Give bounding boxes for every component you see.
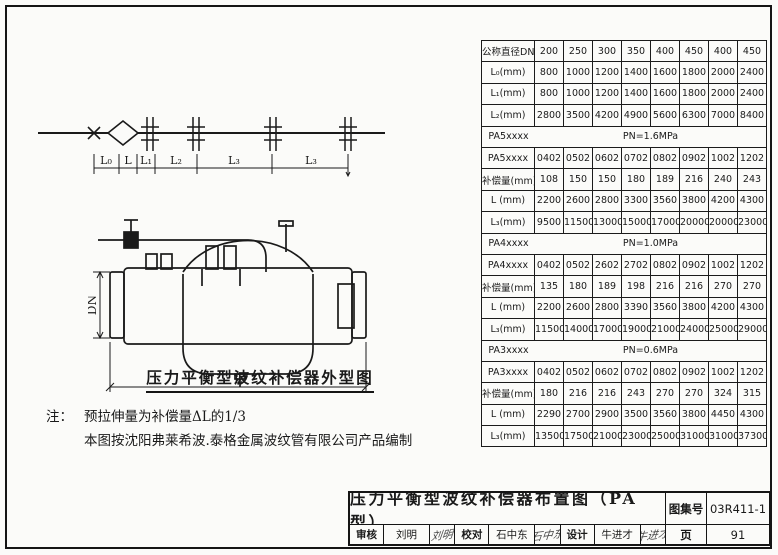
value-cell: 4900 xyxy=(622,105,651,126)
note-prefix: 注： xyxy=(46,406,84,430)
row-label-cell: PA4xxxx xyxy=(482,254,535,275)
role-name-audit: 刘明 xyxy=(384,525,430,544)
table-row: L₃(mm)1350017500210002300025000310003100… xyxy=(482,426,767,447)
pn-row-label: PA4xxxx xyxy=(482,234,535,254)
dim-label-l0: L₀ xyxy=(100,154,112,167)
value-cell: 450 xyxy=(738,41,767,62)
role-label-design: 设计 xyxy=(561,525,595,544)
value-cell: 2200 xyxy=(535,190,564,211)
value-cell: 243 xyxy=(622,383,651,404)
value-cell: 180 xyxy=(622,169,651,190)
value-cell: 3390 xyxy=(622,297,651,318)
row-label-cell: L (mm) xyxy=(482,404,535,425)
value-cell: 23000 xyxy=(622,426,651,447)
dim-label-l3a: L₃ xyxy=(228,154,240,167)
table-row: L (mm)22902700290035003560380044504300 xyxy=(482,404,767,425)
value-cell: 21000 xyxy=(651,319,680,340)
value-cell: 150 xyxy=(593,169,622,190)
value-cell: 2290 xyxy=(535,404,564,425)
value-cell: 315 xyxy=(738,383,767,404)
table-row: L₃(mm)1150014000170001900021000240002500… xyxy=(482,319,767,340)
value-cell: 6300 xyxy=(680,105,709,126)
row-label-cell: L (mm) xyxy=(482,297,535,318)
value-cell: 2000 xyxy=(709,62,738,83)
table-row: PA3xxxx04020502060207020802090210021202 xyxy=(482,361,767,382)
value-cell: 2200 xyxy=(535,297,564,318)
value-cell: 0502 xyxy=(564,254,593,275)
value-cell: 300 xyxy=(593,41,622,62)
value-cell: 9500 xyxy=(535,212,564,233)
value-cell: 0802 xyxy=(651,254,680,275)
value-cell: 189 xyxy=(593,276,622,297)
value-cell: 2800 xyxy=(593,297,622,318)
pn-row-label: PA3xxxx xyxy=(482,341,535,361)
value-cell: 24000 xyxy=(680,319,709,340)
value-cell: 240 xyxy=(709,169,738,190)
table-row: L (mm)22002600280033003560380042004300 xyxy=(482,190,767,211)
value-cell: 400 xyxy=(651,41,680,62)
value-cell: 200 xyxy=(535,41,564,62)
value-cell: 450 xyxy=(680,41,709,62)
signature-check: 石中东 xyxy=(535,525,560,544)
value-cell: 4200 xyxy=(709,297,738,318)
value-cell: 17000 xyxy=(651,212,680,233)
dimension-labels: L₀ L L₁ L₂ L₃ L₃ xyxy=(100,154,317,167)
atlas-number-label: 图集号 xyxy=(666,493,707,525)
compensator-diamond-symbol xyxy=(108,121,138,145)
value-cell: 4300 xyxy=(738,404,767,425)
sheet-title: 压力平衡型波纹补偿器布置图（PA型） xyxy=(350,493,666,525)
table-row: PA4xxxx04020502260227020802090210021202 xyxy=(482,254,767,275)
note-line-2: 本图按沈阳弗莱希波.泰格金属波纹管有限公司产品编制 xyxy=(84,430,412,454)
table-row: 补偿量(mm)108150150180189216240243 xyxy=(482,169,767,190)
value-cell: 1200 xyxy=(593,62,622,83)
value-cell: 37300 xyxy=(738,426,767,447)
value-cell: 2800 xyxy=(593,190,622,211)
value-cell: 1200 xyxy=(593,83,622,104)
value-cell: 2600 xyxy=(564,297,593,318)
value-cell: 400 xyxy=(709,41,738,62)
value-cell: 1202 xyxy=(738,147,767,168)
value-cell: 3500 xyxy=(564,105,593,126)
value-cell: 7000 xyxy=(709,105,738,126)
table-row: 公称直径DN200250300350400450400450 xyxy=(482,41,767,62)
row-label-cell: PA3xxxx xyxy=(482,361,535,382)
value-cell: 13000 xyxy=(593,212,622,233)
value-cell: 19000 xyxy=(622,319,651,340)
value-cell: 0902 xyxy=(680,254,709,275)
pn-span-row: PA5xxxxPN=1.6MPa xyxy=(482,126,767,147)
value-cell: 1600 xyxy=(651,83,680,104)
table-row: PA4xxxxPN=1.0MPa xyxy=(482,233,767,254)
value-cell: 1800 xyxy=(680,62,709,83)
row-label-cell: 补偿量(mm) xyxy=(482,276,535,297)
value-cell: 2702 xyxy=(622,254,651,275)
row-label-cell: L₃(mm) xyxy=(482,319,535,340)
value-cell: 3800 xyxy=(680,404,709,425)
value-cell: 4200 xyxy=(593,105,622,126)
value-cell: 108 xyxy=(535,169,564,190)
value-cell: 216 xyxy=(651,276,680,297)
value-cell: 270 xyxy=(651,383,680,404)
value-cell: 150 xyxy=(564,169,593,190)
pn-rating-value: PN=0.6MPa xyxy=(535,341,766,361)
value-cell: 25000 xyxy=(709,319,738,340)
value-cell: 180 xyxy=(564,276,593,297)
value-cell: 2800 xyxy=(535,105,564,126)
row-label-cell: 补偿量(mm) xyxy=(482,169,535,190)
row-label-cell: L₂(mm) xyxy=(482,105,535,126)
drawing-caption: 压力平衡型波纹补偿器外型图 xyxy=(110,366,410,393)
value-cell: 11500 xyxy=(564,212,593,233)
value-cell: 243 xyxy=(738,169,767,190)
table-row: L₁(mm)8001000120014001600180020002400 xyxy=(482,83,767,104)
role-name-design: 牛进才 xyxy=(595,525,641,544)
row-label-cell: 补偿量(mm) xyxy=(482,383,535,404)
dim-label-l3b: L₃ xyxy=(305,154,317,167)
value-cell: 17000 xyxy=(593,319,622,340)
note-line-1: 预拉伸量为补偿量ΔL的1/3 xyxy=(84,406,246,430)
table-row: 补偿量(mm)135180189198216216270270 xyxy=(482,276,767,297)
spec-table-container: 公称直径DN200250300350400450400450L₀(mm)8001… xyxy=(481,40,767,447)
value-cell: 3300 xyxy=(622,190,651,211)
value-cell: 17500 xyxy=(564,426,593,447)
value-cell: 20000 xyxy=(709,212,738,233)
value-cell: 1600 xyxy=(651,62,680,83)
dn-dimension-label: DN xyxy=(88,295,99,315)
notes: 注： 预拉伸量为补偿量ΔL的1/3 本图按沈阳弗莱希波.泰格金属波纹管有限公司产… xyxy=(46,406,412,453)
value-cell: 3800 xyxy=(680,190,709,211)
value-cell: 11500 xyxy=(535,319,564,340)
value-cell: 1002 xyxy=(709,254,738,275)
value-cell: 0502 xyxy=(564,147,593,168)
value-cell: 2000 xyxy=(709,83,738,104)
value-cell: 1800 xyxy=(680,83,709,104)
row-label-cell: L₃(mm) xyxy=(482,212,535,233)
value-cell: 3560 xyxy=(651,404,680,425)
table-row: L₂(mm)28003500420049005600630070008400 xyxy=(482,105,767,126)
value-cell: 270 xyxy=(680,383,709,404)
signature-audit: 刘明 xyxy=(430,525,455,544)
value-cell: 0602 xyxy=(593,361,622,382)
spec-table: 公称直径DN200250300350400450400450L₀(mm)8001… xyxy=(481,40,767,447)
value-cell: 0802 xyxy=(651,361,680,382)
value-cell: 216 xyxy=(680,276,709,297)
table-row: L₃(mm)9500115001300015000170002000020000… xyxy=(482,212,767,233)
value-cell: 2602 xyxy=(593,254,622,275)
value-cell: 350 xyxy=(622,41,651,62)
value-cell: 250 xyxy=(564,41,593,62)
pn-row-label: PA5xxxx xyxy=(482,127,535,147)
value-cell: 198 xyxy=(622,276,651,297)
value-cell: 0802 xyxy=(651,147,680,168)
value-cell: 216 xyxy=(680,169,709,190)
value-cell: 0902 xyxy=(680,361,709,382)
value-cell: 15000 xyxy=(622,212,651,233)
value-cell: 31000 xyxy=(680,426,709,447)
page-number-value: 91 xyxy=(707,525,769,544)
value-cell: 0702 xyxy=(622,361,651,382)
row-label-cell: PA5xxxx xyxy=(482,147,535,168)
pipeline-schematic: L₀ L L₁ L₂ L₃ L₃ xyxy=(30,110,410,194)
value-cell: 1400 xyxy=(622,83,651,104)
value-cell: 8400 xyxy=(738,105,767,126)
value-cell: 4200 xyxy=(709,190,738,211)
value-cell: 0702 xyxy=(622,147,651,168)
row-label-cell: L₁(mm) xyxy=(482,83,535,104)
value-cell: 31000 xyxy=(709,426,738,447)
value-cell: 135 xyxy=(535,276,564,297)
row-label-cell: L₀(mm) xyxy=(482,62,535,83)
approval-row: 审核 刘明 刘明 校对 石中东 石中东 设计 牛进才 牛进才 xyxy=(350,525,666,544)
table-row: L₀(mm)8001000120014001600180020002400 xyxy=(482,62,767,83)
value-cell: 0402 xyxy=(535,254,564,275)
value-cell: 14000 xyxy=(564,319,593,340)
value-cell: 1002 xyxy=(709,147,738,168)
pn-rating-value: PN=1.0MPa xyxy=(535,234,766,254)
value-cell: 1202 xyxy=(738,254,767,275)
table-row: PA5xxxxPN=1.6MPa xyxy=(482,126,767,147)
value-cell: 216 xyxy=(593,383,622,404)
signature-design: 牛进才 xyxy=(641,525,665,544)
scanned-drawing-page: L₀ L L₁ L₂ L₃ L₃ xyxy=(0,0,778,555)
value-cell: 0902 xyxy=(680,147,709,168)
role-label-check: 校对 xyxy=(455,525,489,544)
value-cell: 20000 xyxy=(680,212,709,233)
value-cell: 4300 xyxy=(738,297,767,318)
value-cell: 3500 xyxy=(622,404,651,425)
value-cell: 1202 xyxy=(738,361,767,382)
value-cell: 216 xyxy=(564,383,593,404)
value-cell: 0402 xyxy=(535,361,564,382)
dim-label-l: L xyxy=(124,154,132,167)
value-cell: 0602 xyxy=(593,147,622,168)
page-number-label: 页 xyxy=(666,525,707,544)
value-cell: 4300 xyxy=(738,190,767,211)
table-row: 补偿量(mm)180216216243270270324315 xyxy=(482,383,767,404)
value-cell: 4450 xyxy=(709,404,738,425)
table-row: L (mm)22002600280033903560380042004300 xyxy=(482,297,767,318)
spec-table-body: 公称直径DN200250300350400450400450L₀(mm)8001… xyxy=(482,41,767,447)
value-cell: 5600 xyxy=(651,105,680,126)
value-cell: 13500 xyxy=(535,426,564,447)
value-cell: 324 xyxy=(709,383,738,404)
role-label-audit: 审核 xyxy=(350,525,384,544)
table-row: PA3xxxxPN=0.6MPa xyxy=(482,340,767,361)
value-cell: 3560 xyxy=(651,297,680,318)
value-cell: 180 xyxy=(535,383,564,404)
value-cell: 2600 xyxy=(564,190,593,211)
value-cell: 29000 xyxy=(738,319,767,340)
value-cell: 23000 xyxy=(738,212,767,233)
pn-span-row: PA3xxxxPN=0.6MPa xyxy=(482,340,767,361)
value-cell: 1000 xyxy=(564,83,593,104)
pn-rating-value: PN=1.6MPa xyxy=(535,127,766,147)
atlas-number-value: 03R411-1 xyxy=(707,493,769,525)
value-cell: 25000 xyxy=(651,426,680,447)
value-cell: 0402 xyxy=(535,147,564,168)
dim-label-l2: L₂ xyxy=(170,154,182,167)
value-cell: 1002 xyxy=(709,361,738,382)
value-cell: 2400 xyxy=(738,83,767,104)
title-block: 压力平衡型波纹补偿器布置图（PA型） 图集号 03R411-1 审核 刘明 刘明… xyxy=(348,491,771,546)
value-cell: 1400 xyxy=(622,62,651,83)
row-label-cell: L (mm) xyxy=(482,190,535,211)
value-cell: 270 xyxy=(709,276,738,297)
value-cell: 800 xyxy=(535,83,564,104)
value-cell: 2900 xyxy=(593,404,622,425)
row-label-cell: 公称直径DN xyxy=(482,41,535,62)
pipeline-schematic-svg: L₀ L L₁ L₂ L₃ L₃ xyxy=(30,110,410,190)
value-cell: 800 xyxy=(535,62,564,83)
value-cell: 3560 xyxy=(651,190,680,211)
pn-span-row: PA4xxxxPN=1.0MPa xyxy=(482,233,767,254)
value-cell: 21000 xyxy=(593,426,622,447)
value-cell: 189 xyxy=(651,169,680,190)
value-cell: 270 xyxy=(738,276,767,297)
table-row: PA5xxxx04020502060207020802090210021202 xyxy=(482,147,767,168)
row-label-cell: L₃(mm) xyxy=(482,426,535,447)
value-cell: 2400 xyxy=(738,62,767,83)
dim-label-l1: L₁ xyxy=(140,154,152,167)
role-name-check: 石中东 xyxy=(489,525,535,544)
value-cell: 0502 xyxy=(564,361,593,382)
value-cell: 3800 xyxy=(680,297,709,318)
value-cell: 1000 xyxy=(564,62,593,83)
value-cell: 2700 xyxy=(564,404,593,425)
